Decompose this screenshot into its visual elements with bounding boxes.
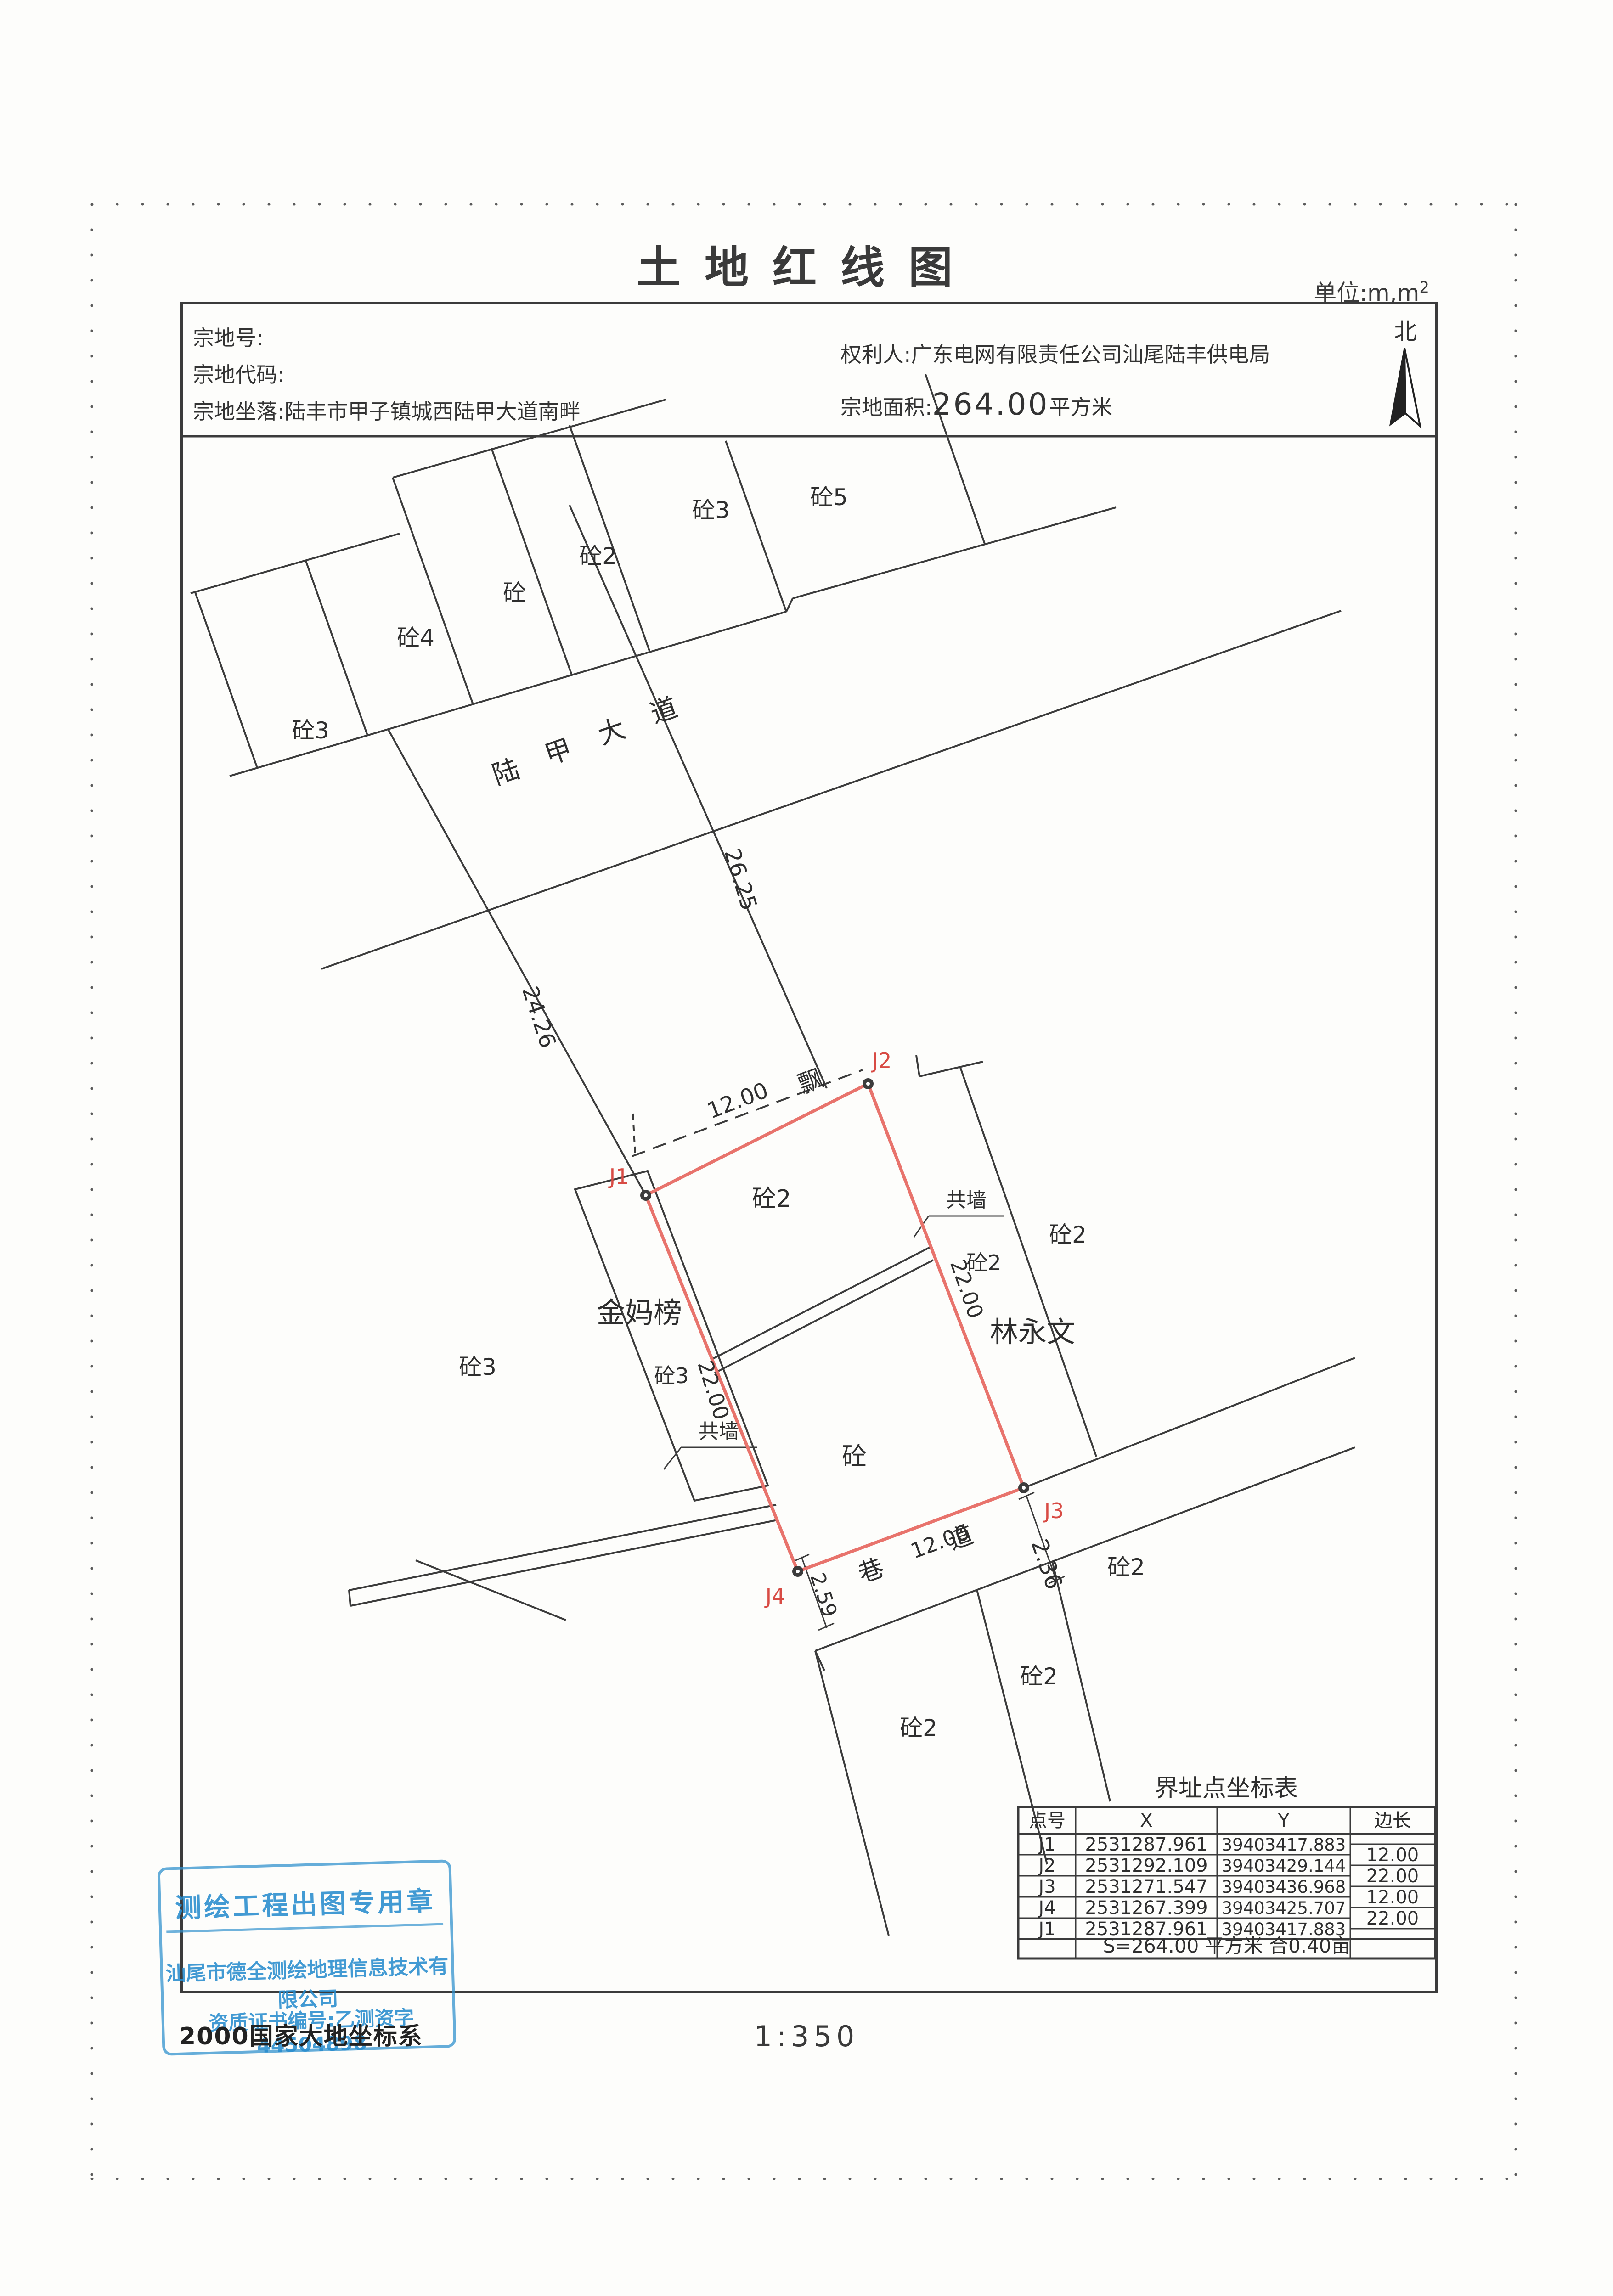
svg-text:22.00: 22.00 <box>1366 1866 1419 1887</box>
svg-text:砼3: 砼3 <box>292 717 329 744</box>
col-y: Y <box>1278 1810 1290 1831</box>
dim-road-right: 26.25 <box>719 845 762 913</box>
svg-text:甲: 甲 <box>541 732 576 771</box>
dim-road-left: 24.26 <box>517 983 561 1051</box>
svg-text:砼3: 砼3 <box>459 1354 496 1380</box>
unit-note: 单位:m,m2 <box>1314 275 1429 308</box>
table-footer-area: S=264.00 平方米 合0.40亩 <box>1103 1935 1350 1957</box>
scanned-land-redline-map-sheet: J1 J2 J3 J4 陆 甲 大 道 巷 道 24.26 26.25 12.0… <box>0 0 1613 2296</box>
svg-text:砼2: 砼2 <box>966 1250 1001 1275</box>
map-scale: 1:350 <box>0 2020 1613 2053</box>
svg-text:39403429.144: 39403429.144 <box>1222 1856 1346 1876</box>
parcel-area-field: 宗地面积:264.00平方米 <box>840 387 1112 422</box>
dim-lane-left: 2.59 <box>805 1570 841 1620</box>
neighbor-right: 林永文 <box>990 1315 1075 1349</box>
stamp-title: 测绘工程出图专用章 <box>161 1880 450 1925</box>
north-label: 北 <box>1394 313 1417 346</box>
col-edge: 边长 <box>1374 1810 1411 1831</box>
road-and-parcel-lines <box>191 374 1355 1936</box>
svg-text:巷: 巷 <box>855 1553 888 1589</box>
col-point: 点号 <box>1029 1810 1066 1831</box>
svg-text:砼2: 砼2 <box>900 1715 937 1741</box>
svg-text:陆: 陆 <box>488 753 524 791</box>
svg-text:砼5: 砼5 <box>810 484 848 511</box>
svg-text:J1: J1 <box>1037 1919 1055 1940</box>
svg-text:39403417.883: 39403417.883 <box>1222 1835 1346 1855</box>
svg-text:道: 道 <box>646 691 682 729</box>
svg-text:39403436.968: 39403436.968 <box>1222 1877 1346 1897</box>
dim-lane-right: 2.36 <box>1026 1536 1068 1593</box>
svg-text:砼2: 砼2 <box>1107 1554 1145 1581</box>
svg-text:J3: J3 <box>1037 1876 1055 1897</box>
parcel-code-field: 宗地代码: <box>193 358 285 388</box>
north-arrow-icon <box>1390 348 1420 426</box>
neighbor-left: 金妈榜 <box>597 1296 682 1329</box>
parcel-location-field: 宗地坐落:陆丰市甲子镇城西陆甲大道南畔 <box>193 395 581 425</box>
svg-text:大: 大 <box>594 712 629 750</box>
map-frame <box>181 303 1437 1992</box>
svg-text:砼4: 砼4 <box>397 625 434 651</box>
svg-text:J2: J2 <box>1037 1855 1055 1876</box>
parcel-no-field: 宗地号: <box>193 321 264 352</box>
point-label-j3: J3 <box>1043 1498 1064 1523</box>
svg-text:砼2: 砼2 <box>1020 1663 1058 1690</box>
svg-text:砼3: 砼3 <box>692 497 730 523</box>
point-label-j2: J2 <box>871 1048 892 1073</box>
svg-text:2531292.109: 2531292.109 <box>1085 1855 1207 1876</box>
svg-text:砼3: 砼3 <box>654 1363 688 1388</box>
svg-text:2531271.547: 2531271.547 <box>1085 1876 1207 1897</box>
svg-text:砼: 砼 <box>503 580 526 606</box>
col-x: X <box>1140 1810 1152 1831</box>
svg-text:12.00: 12.00 <box>1366 1845 1419 1866</box>
shared-wall-left: 共墙 <box>699 1420 739 1443</box>
dim-side-left: 22.00 <box>693 1357 734 1423</box>
svg-text:砼: 砼 <box>842 1442 867 1471</box>
point-label-j1: J1 <box>608 1164 629 1189</box>
parcel-area-value: 264.00 <box>932 387 1049 422</box>
svg-text:砼2: 砼2 <box>579 543 617 569</box>
svg-text:2531287.961: 2531287.961 <box>1085 1834 1207 1855</box>
stamp-divider <box>166 1923 443 1933</box>
svg-text:2531267.399: 2531267.399 <box>1085 1897 1207 1919</box>
svg-text:砼2: 砼2 <box>1049 1221 1087 1248</box>
point-label-j4: J4 <box>764 1584 785 1609</box>
coordinate-table: 界址点坐标表 点号 X Y <box>1018 1775 1435 1958</box>
shared-wall-right: 共墙 <box>946 1188 987 1212</box>
svg-text:J1: J1 <box>1037 1834 1055 1855</box>
svg-text:12.00: 12.00 <box>1366 1887 1419 1908</box>
svg-text:砼2: 砼2 <box>752 1185 791 1213</box>
road-name: 陆 甲 大 道 <box>488 691 682 791</box>
svg-text:22.00: 22.00 <box>1366 1908 1419 1929</box>
svg-text:J4: J4 <box>1037 1897 1055 1919</box>
coordinate-table-title: 界址点坐标表 <box>1155 1775 1298 1802</box>
rights-holder-field: 权利人:广东电网有限责任公司汕尾陆丰供电局 <box>840 338 1270 368</box>
svg-text:39403425.707: 39403425.707 <box>1222 1898 1346 1918</box>
